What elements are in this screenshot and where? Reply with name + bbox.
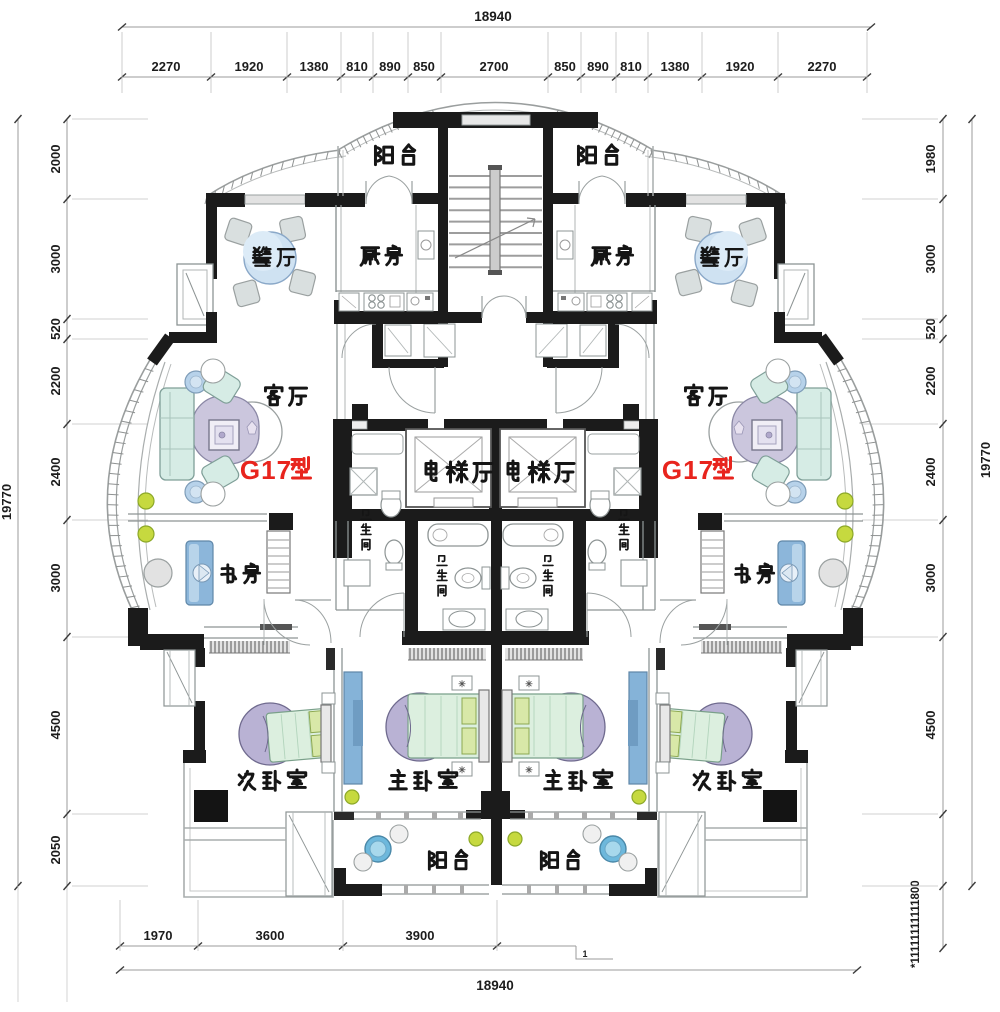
svg-text:1970: 1970 <box>144 928 173 943</box>
svg-text:4500: 4500 <box>48 711 63 740</box>
svg-text:2000: 2000 <box>48 145 63 174</box>
svg-text:3000: 3000 <box>48 564 63 593</box>
svg-text:1380: 1380 <box>661 59 690 74</box>
svg-text:810: 810 <box>346 59 368 74</box>
svg-text:✳: ✳ <box>525 765 533 775</box>
svg-text:✳: ✳ <box>458 679 466 689</box>
svg-text:18940: 18940 <box>474 9 512 24</box>
svg-text:1: 1 <box>582 949 587 959</box>
svg-text:✳: ✳ <box>458 765 466 775</box>
svg-text:2700: 2700 <box>480 59 509 74</box>
svg-text:850: 850 <box>413 59 435 74</box>
svg-text:G17: G17 <box>662 455 714 485</box>
svg-text:850: 850 <box>554 59 576 74</box>
svg-text:1920: 1920 <box>726 59 755 74</box>
svg-text:2400: 2400 <box>923 458 938 487</box>
svg-text:4500: 4500 <box>923 711 938 740</box>
svg-text:3900: 3900 <box>406 928 435 943</box>
svg-text:3000: 3000 <box>923 245 938 274</box>
svg-text:*11111111111800: *11111111111800 <box>910 880 922 968</box>
svg-text:890: 890 <box>587 59 609 74</box>
svg-text:3600: 3600 <box>256 928 285 943</box>
svg-text:2270: 2270 <box>152 59 181 74</box>
svg-text:2270: 2270 <box>808 59 837 74</box>
svg-text:1980: 1980 <box>923 145 938 174</box>
svg-text:2200: 2200 <box>48 367 63 396</box>
svg-text:19770: 19770 <box>978 442 993 478</box>
svg-text:1920: 1920 <box>235 59 264 74</box>
svg-text:2050: 2050 <box>48 836 63 865</box>
svg-text:890: 890 <box>379 59 401 74</box>
svg-text:2400: 2400 <box>48 458 63 487</box>
svg-text:520: 520 <box>923 318 938 340</box>
svg-text:2200: 2200 <box>923 367 938 396</box>
svg-text:3000: 3000 <box>48 245 63 274</box>
svg-text:1380: 1380 <box>300 59 329 74</box>
svg-text:19770: 19770 <box>0 484 14 520</box>
svg-text:520: 520 <box>48 318 63 340</box>
svg-text:18940: 18940 <box>476 978 514 993</box>
svg-text:G17: G17 <box>240 455 292 485</box>
svg-text:3000: 3000 <box>923 564 938 593</box>
svg-text:✳: ✳ <box>525 679 533 689</box>
svg-text:810: 810 <box>620 59 642 74</box>
